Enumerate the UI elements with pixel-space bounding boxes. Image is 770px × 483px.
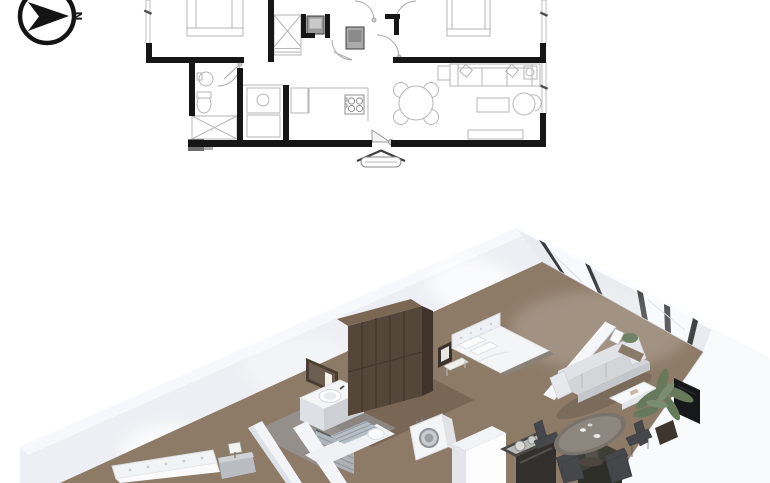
compass-icon: N: [20, 0, 84, 43]
coffee-table-icon: [477, 98, 509, 112]
basin-icon: [197, 72, 213, 86]
render-3d: [20, 225, 770, 483]
plan-furniture: [146, 0, 546, 167]
linen-closet-icon: [192, 116, 237, 139]
wardrobe-closet-icon: [274, 15, 301, 55]
floorplan-presentation: N: [0, 0, 770, 483]
entrance-canopy-icon: [357, 151, 405, 168]
floor-plan-2d: [144, 0, 548, 167]
entrance-door-icon: [372, 130, 394, 145]
armchair-icon: [513, 93, 541, 115]
bed-icon: [187, 0, 243, 36]
sofa-icon: [450, 64, 540, 86]
compass-label: N: [71, 11, 84, 20]
laundry-icon: [243, 85, 283, 137]
toilet-icon: [197, 92, 211, 113]
north-arrow-icon: [28, 2, 69, 31]
plan-door-swings: [218, 1, 416, 86]
cooktop-icon: [345, 95, 364, 114]
bed-icon: [447, 0, 490, 36]
tv-cabinet-icon: [468, 130, 523, 139]
plan-appliances: [307, 16, 364, 49]
dining-table-icon: [394, 83, 439, 125]
toilet-3d: [368, 429, 384, 440]
scene: N: [0, 0, 770, 483]
